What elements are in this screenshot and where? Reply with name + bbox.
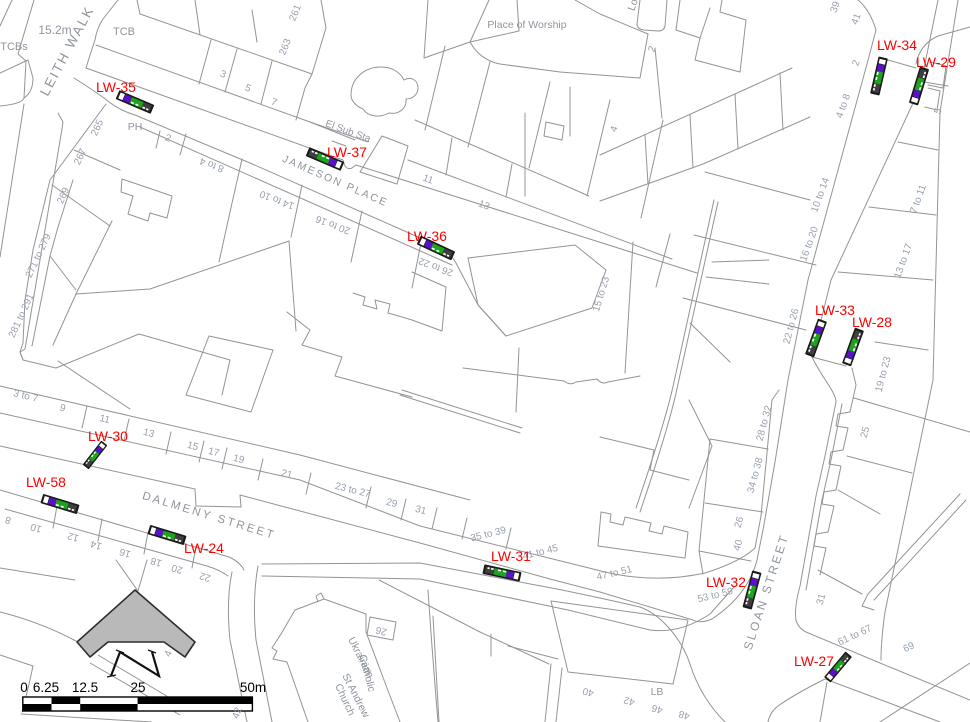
svg-text:TCB: TCB <box>113 26 135 38</box>
svg-text:LW-34: LW-34 <box>877 37 917 53</box>
svg-text:TCBs: TCBs <box>0 41 28 53</box>
svg-text:6.25: 6.25 <box>33 680 59 695</box>
svg-text:LB: LB <box>651 686 664 698</box>
svg-text:Place of Worship: Place of Worship <box>487 19 566 31</box>
svg-text:LW-24: LW-24 <box>184 540 224 556</box>
svg-text:0: 0 <box>20 680 28 695</box>
svg-text:LW-58: LW-58 <box>26 474 66 490</box>
svg-text:12.5: 12.5 <box>72 680 98 695</box>
svg-text:PH: PH <box>128 121 143 133</box>
svg-text:LW-30: LW-30 <box>88 428 128 444</box>
svg-text:LW-35: LW-35 <box>96 79 136 95</box>
svg-text:LW-28: LW-28 <box>852 314 892 330</box>
svg-text:LW-27: LW-27 <box>794 653 834 669</box>
svg-text:LW-32: LW-32 <box>706 574 746 590</box>
svg-text:LW-31: LW-31 <box>491 548 531 564</box>
svg-text:25: 25 <box>130 680 145 695</box>
svg-text:50m: 50m <box>240 680 266 695</box>
svg-text:LW-33: LW-33 <box>815 302 855 318</box>
